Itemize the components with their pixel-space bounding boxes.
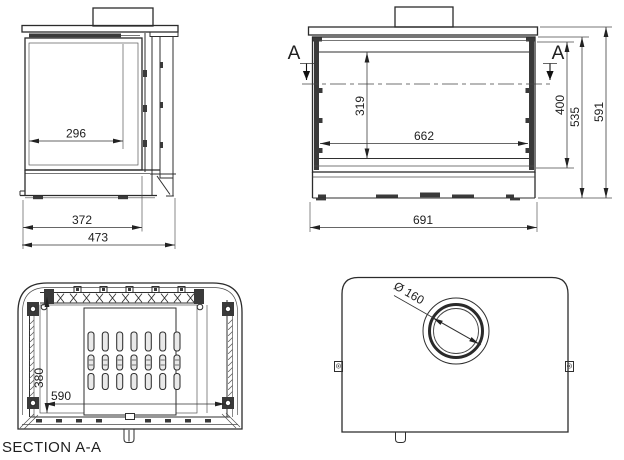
section-title: SECTION A-A — [2, 439, 101, 456]
technical-drawing-sheet: 296 372 473 — [0, 0, 624, 460]
dim-473-label: 473 — [88, 231, 108, 245]
dim-691-label: 691 — [413, 213, 433, 227]
dim-296-label: 296 — [66, 127, 86, 141]
dim-535-label: 535 — [568, 107, 582, 127]
section-marker-a-right: A — [552, 43, 565, 64]
dim-372-label: 372 — [72, 213, 92, 227]
dim-319-label: 319 — [353, 96, 367, 116]
section-marker-a-left: A — [288, 43, 301, 64]
dim-590-label: 590 — [51, 389, 71, 403]
vent-slots — [88, 332, 180, 390]
dim-591-label: 591 — [592, 102, 606, 122]
dim-380-label: 380 — [32, 368, 46, 388]
dim-400-label: 400 — [553, 95, 567, 115]
dim-662-label: 662 — [414, 129, 434, 143]
drawing-canvas: 296 372 473 — [0, 0, 624, 460]
